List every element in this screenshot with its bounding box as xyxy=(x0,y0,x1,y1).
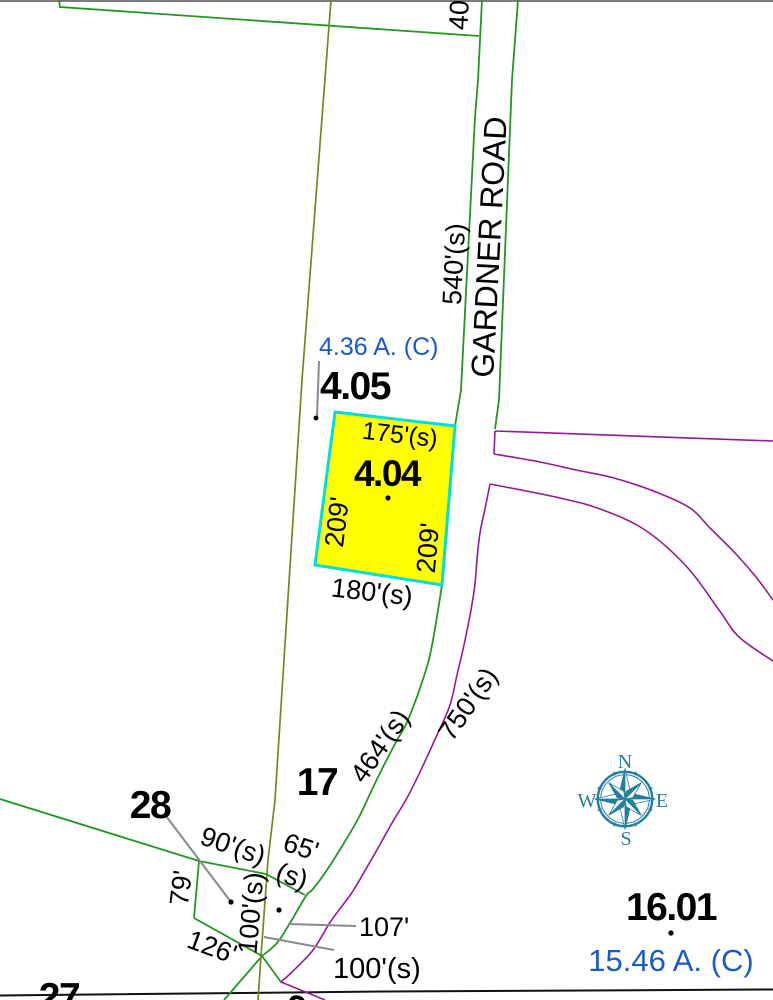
svg-text:E: E xyxy=(656,790,668,812)
svg-text:40: 40 xyxy=(443,0,475,31)
svg-text:4.05: 4.05 xyxy=(320,365,391,408)
svg-text:N: N xyxy=(618,751,632,773)
svg-text:17: 17 xyxy=(297,761,337,804)
svg-text:209': 209' xyxy=(411,522,445,575)
svg-text:4.36 A. (C): 4.36 A. (C) xyxy=(319,333,439,361)
svg-text:15.46 A. (C): 15.46 A. (C) xyxy=(588,943,753,978)
svg-text:79': 79' xyxy=(164,869,198,908)
svg-text:209': 209' xyxy=(319,495,355,548)
svg-text:107': 107' xyxy=(359,912,409,942)
svg-text:27: 27 xyxy=(39,976,79,1000)
svg-text:28: 28 xyxy=(130,784,171,827)
svg-text:16.01: 16.01 xyxy=(626,886,717,929)
svg-text:S: S xyxy=(620,828,631,850)
svg-text:100'(s): 100'(s) xyxy=(333,953,421,985)
svg-text:4.04: 4.04 xyxy=(354,453,422,494)
svg-text:540'(s): 540'(s) xyxy=(437,222,471,305)
svg-text:W: W xyxy=(578,790,597,812)
